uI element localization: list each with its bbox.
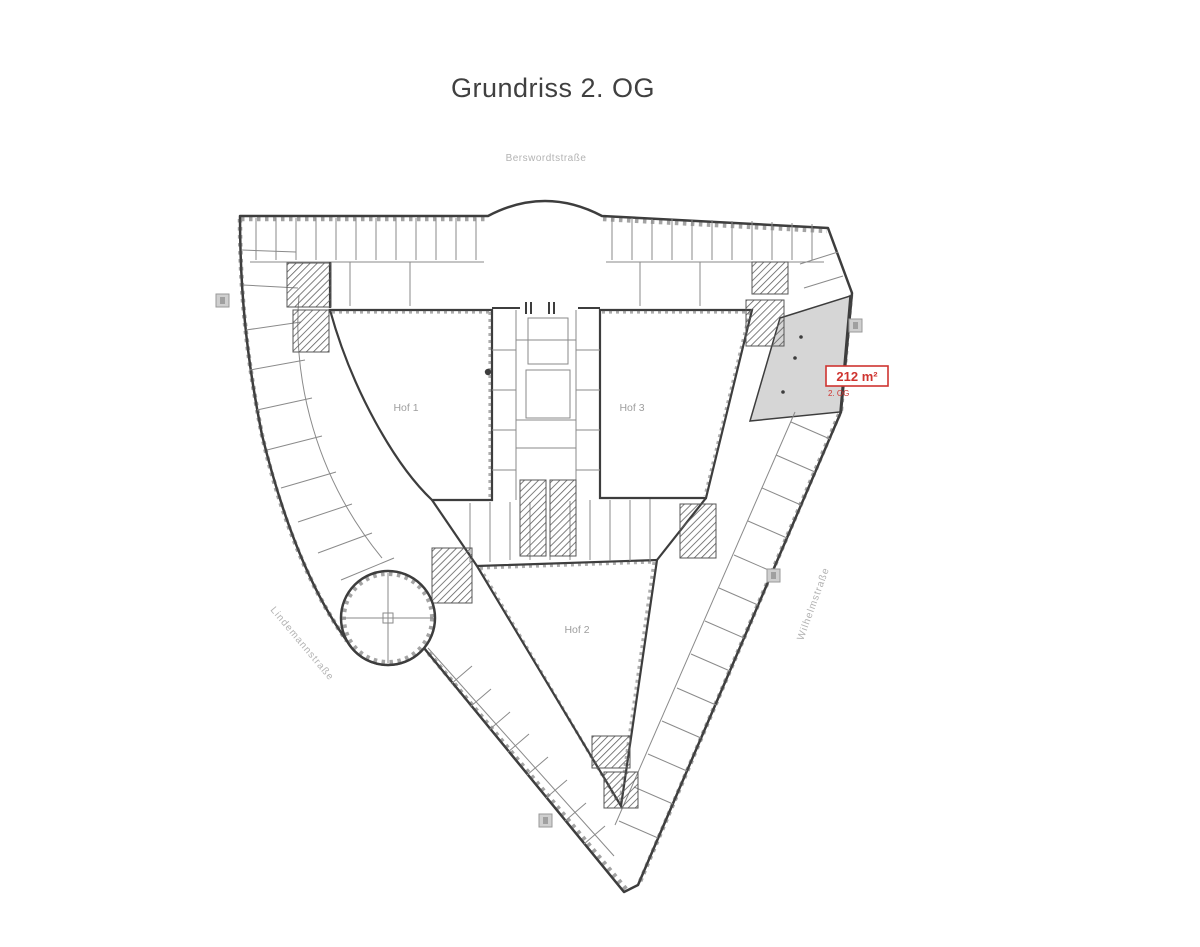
stair-core-right-junction	[680, 504, 716, 558]
street-label-left: Lindemannstraße	[268, 605, 336, 683]
stair-core-topright-b	[746, 300, 784, 346]
stair-core-left-junction	[432, 548, 472, 603]
stair-core-topright-a	[752, 262, 788, 294]
area-label-floor: 2. OG	[828, 389, 849, 398]
stair-core-tip-a	[592, 736, 630, 768]
stair-core-tip-b	[604, 772, 638, 808]
courtyard-label-hof3: Hof 3	[619, 402, 644, 414]
area-label: 212 m² 2. OG	[826, 366, 888, 398]
courtyard-label-hof2: Hof 2	[564, 624, 589, 636]
entrance-marker-south	[539, 814, 552, 827]
entrance-marker-southeast	[767, 569, 780, 582]
stair-core-central-b	[550, 480, 576, 556]
street-label-top: Berswordtstraße	[506, 153, 587, 164]
street-label-right: Wilhelmstraße	[795, 566, 832, 642]
stair-core-central-a	[520, 480, 546, 556]
courtyard-label-hof1: Hof 1	[393, 402, 418, 414]
entrance-marker-east	[849, 319, 862, 332]
floor-plan-drawing: 212 m² 2. OG Grundriss 2. OG Berswordtst…	[0, 0, 1200, 947]
door-dot-hof1	[485, 369, 491, 375]
stair-core-topleft-b	[293, 310, 329, 352]
area-label-value: 212 m²	[836, 369, 878, 384]
floor-plan-page: 212 m² 2. OG Grundriss 2. OG Berswordtst…	[0, 0, 1200, 947]
entrance-marker-west	[216, 294, 229, 307]
page-title: Grundriss 2. OG	[451, 73, 655, 103]
stair-core-topleft-a	[287, 263, 331, 307]
rotunda	[341, 571, 435, 665]
